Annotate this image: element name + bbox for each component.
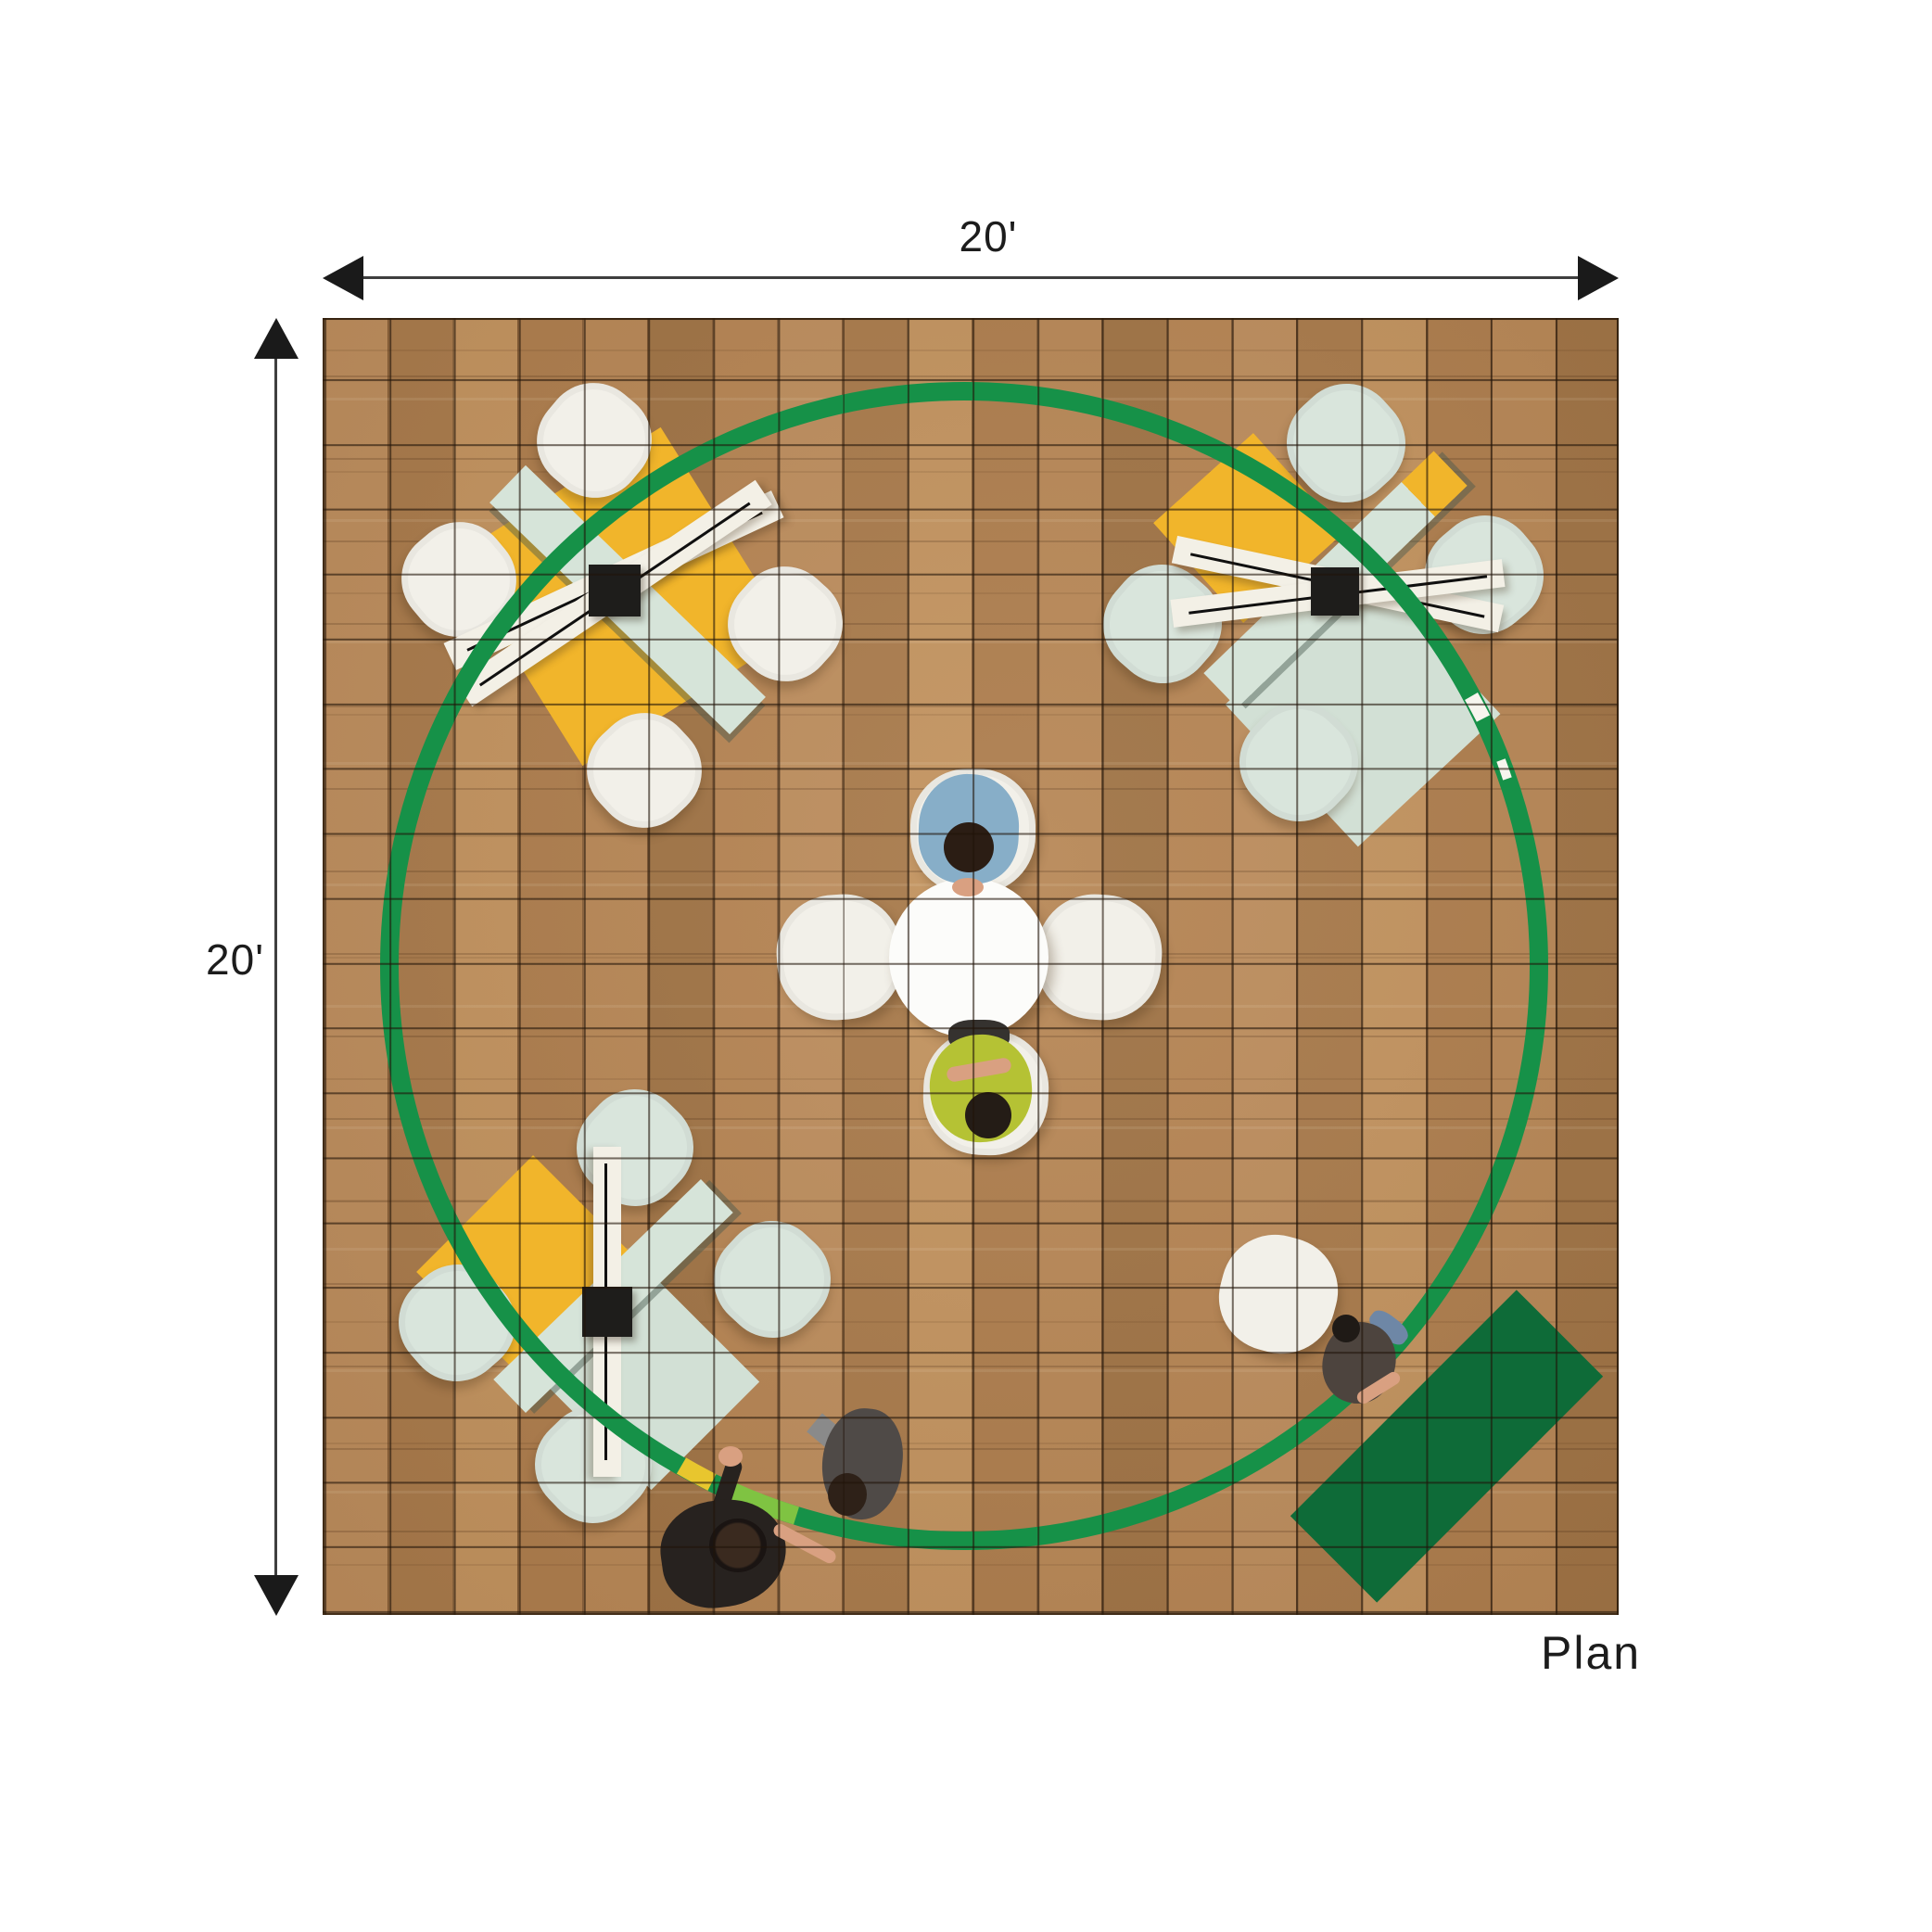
head (1332, 1315, 1360, 1342)
person-sitting-right (1321, 1315, 1414, 1412)
arrow-up-icon (254, 318, 299, 359)
dimension-horizontal (323, 256, 1619, 300)
head (944, 822, 994, 872)
arrow-left-icon (323, 256, 363, 300)
person-seated-lime (922, 1020, 1038, 1154)
perimeter-circle (323, 318, 1619, 1615)
plan-canvas: 20' 20' (0, 0, 1932, 1932)
plan-caption: Plan (1541, 1626, 1641, 1680)
arrow-right-icon (1578, 256, 1619, 300)
circle-gap-dash (1501, 760, 1507, 779)
person-standing-black (661, 1444, 846, 1611)
person-seated-blue (913, 774, 1024, 913)
head (965, 1092, 1011, 1138)
person-standing-gray (822, 1403, 910, 1523)
height-dimension-label: 20' (139, 934, 264, 985)
width-dimension-label: 20' (914, 211, 1062, 261)
head (828, 1473, 867, 1516)
dimension-line (356, 276, 1585, 279)
head (709, 1519, 767, 1572)
wood-floor (323, 318, 1619, 1615)
arrow-down-icon (254, 1575, 299, 1616)
hand (718, 1446, 743, 1467)
dimension-line (274, 351, 277, 1582)
hands (952, 878, 984, 896)
